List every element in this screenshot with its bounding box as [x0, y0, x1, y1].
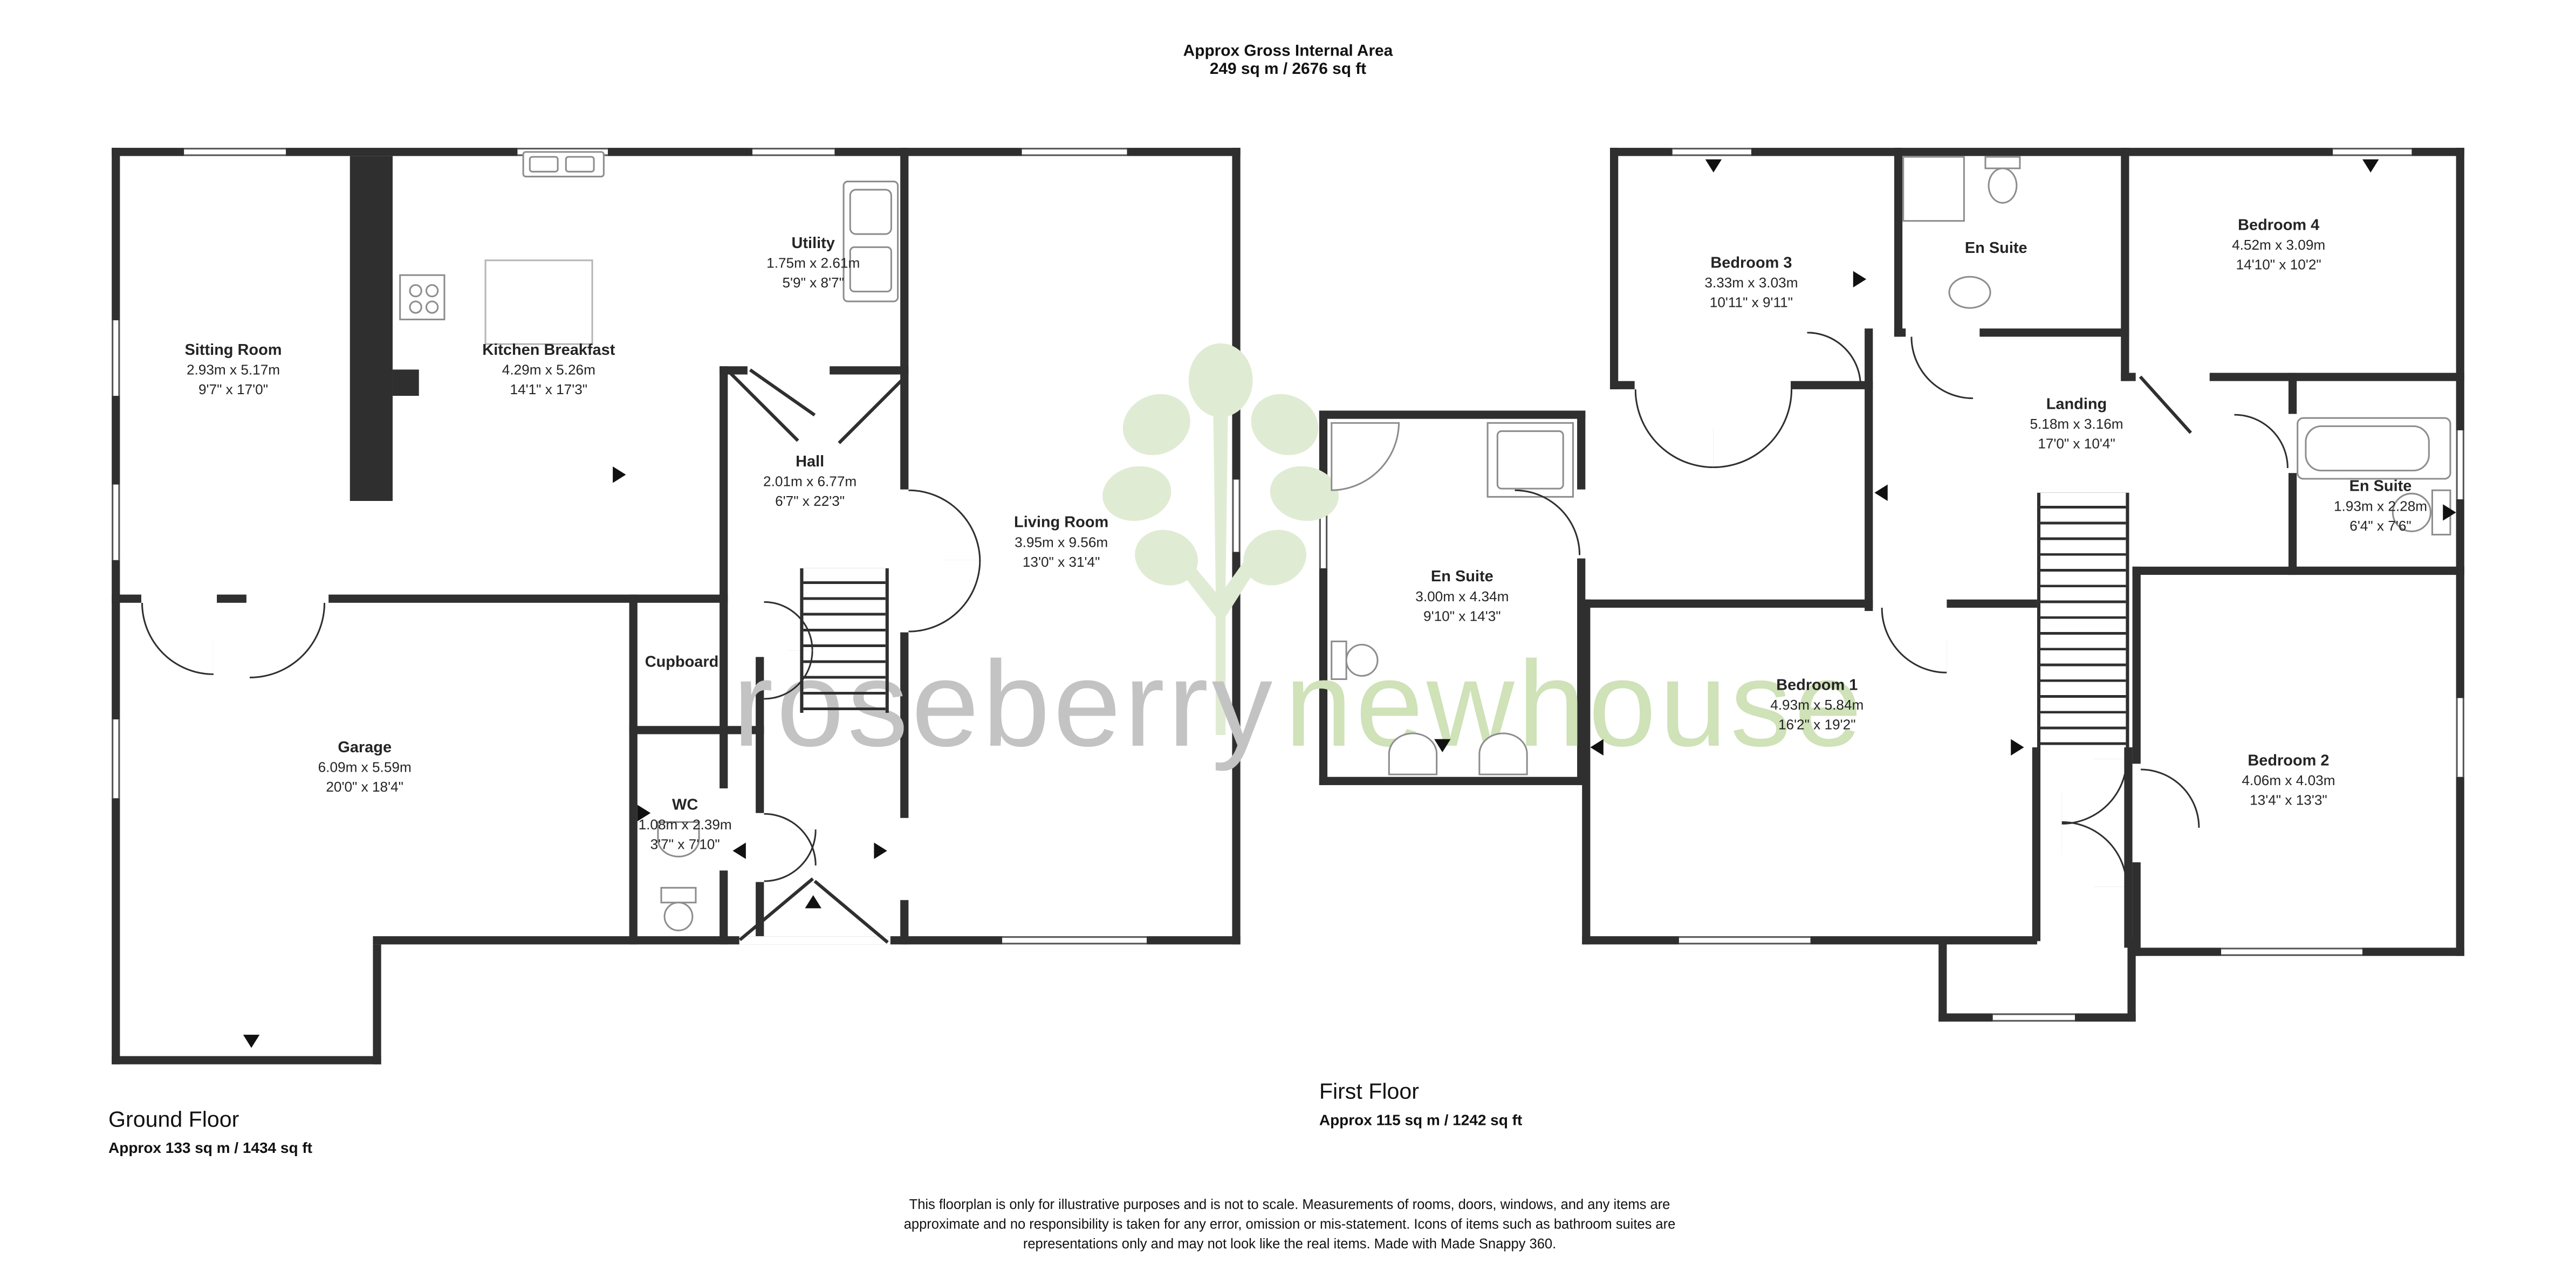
room-metric: 4.52m x 3.09m [2163, 237, 2393, 256]
door-arc [764, 829, 816, 882]
window [184, 148, 286, 156]
door-arc [2062, 759, 2128, 824]
room-metric: 2.01m x 6.77m [728, 473, 892, 492]
wall [1319, 410, 1585, 418]
floorplan-canvas: roseberry newhouse Approx Gross Internal… [0, 0, 2576, 1278]
floor-name: Ground Floor [108, 1107, 312, 1132]
wall [1577, 410, 1585, 489]
room-label-wc: WC 1.08m x 2.39m 3'7" x 7'10" [603, 796, 768, 854]
room-name: Hall [728, 454, 892, 474]
room-name: En Suite [2298, 478, 2463, 498]
room-name: Bedroom 4 [2163, 217, 2393, 237]
wall [1894, 148, 1902, 336]
room-imperial: 13'4" x 13'3" [2174, 791, 2403, 809]
door-leaf [838, 374, 907, 444]
door-arc [2062, 821, 2128, 887]
room-imperial: 3'7" x 7'10" [603, 835, 768, 854]
wall [112, 595, 141, 603]
wall [328, 595, 728, 603]
floor-name: First Floor [1319, 1079, 1522, 1104]
room-label-bedroom-2: Bedroom 2 4.06m x 4.03m 13'4" x 13'3" [2174, 752, 2403, 809]
gross-internal-area-header: Approx Gross Internal Area 249 sq m / 26… [960, 43, 1616, 79]
room-metric: 4.06m x 4.03m [2174, 773, 2403, 791]
room-label-hall: Hall 2.01m x 6.77m 6'7" x 22'3" [728, 454, 892, 511]
room-label-en-suite-top: En Suite [1914, 240, 2078, 260]
wall [112, 148, 120, 1064]
wall [2133, 567, 2464, 575]
utility-sink-bowl-icon [849, 189, 892, 235]
wall [830, 366, 908, 374]
kitchen-sink-bowl-icon [529, 156, 559, 172]
room-name: En Suite [1914, 240, 2078, 260]
room-name: Utility [731, 235, 895, 256]
toilet-icon [1331, 641, 1347, 680]
room-imperial: 6'4" x 7'6" [2298, 517, 2463, 535]
wall [1319, 777, 1585, 785]
door-leaf [749, 368, 816, 416]
room-imperial: 5'9" x 8'7" [731, 273, 895, 292]
shower-tray-icon [1497, 430, 1564, 490]
room-name: Garage [266, 739, 463, 760]
wall [1938, 939, 1947, 1021]
wall [1582, 600, 1873, 608]
window [1679, 936, 1811, 944]
basin-icon [1478, 732, 1527, 775]
door-arc [141, 603, 214, 675]
wall [2289, 373, 2297, 414]
room-name: En Suite [1347, 568, 1577, 589]
toilet-bowl-icon [1346, 644, 1379, 677]
kitchen-sink-bowl-icon [565, 156, 595, 172]
wall [2121, 148, 2129, 381]
basin-icon [1388, 732, 1437, 775]
room-metric: 2.93m x 5.17m [135, 362, 332, 380]
chimney-wall [350, 156, 393, 501]
wall [2210, 373, 2464, 381]
room-metric: 1.08m x 2.39m [603, 817, 768, 835]
room-label-utility: Utility 1.75m x 2.61m 5'9" x 8'7" [731, 235, 895, 292]
door-arc [1635, 389, 1714, 468]
door-marker [2011, 739, 2024, 755]
ground-floor-caption: Ground Floor Approx 133 sq m / 1434 sq f… [108, 1107, 312, 1156]
door-arc [2234, 414, 2289, 469]
door-marker [2362, 159, 2379, 172]
door-marker [1434, 739, 1450, 752]
wall [756, 882, 764, 945]
floor-area: Approx 115 sq m / 1242 sq ft [1319, 1112, 1522, 1128]
window [2456, 698, 2464, 777]
window [2333, 148, 2411, 156]
wall [1610, 148, 1618, 389]
wall [2032, 747, 2040, 941]
room-imperial: 9'10" x 14'3" [1347, 607, 1577, 626]
toilet-bowl-icon [1988, 168, 2018, 204]
wall [2124, 747, 2132, 948]
room-label-en-suite-right: En Suite 1.93m x 2.28m 6'4" x 7'6" [2298, 478, 2463, 535]
door-arc [1515, 490, 1580, 555]
wall [1947, 600, 2037, 608]
door-marker [874, 843, 887, 859]
room-metric: 3.95m x 9.56m [946, 534, 1176, 553]
wall [720, 366, 728, 788]
header-title: Approx Gross Internal Area [960, 43, 1616, 61]
wall [112, 1056, 381, 1064]
door-marker [243, 1035, 259, 1048]
first-floor-caption: First Floor Approx 115 sq m / 1242 sq ft [1319, 1079, 1522, 1128]
room-label-living-room: Living Room 3.95m x 9.56m 13'0" x 31'4" [946, 514, 1176, 571]
room-imperial: 10'11" x 9'11" [1636, 293, 1866, 312]
room-label-garage: Garage 6.09m x 5.59m 20'0" x 18'4" [266, 739, 463, 796]
header-area: 249 sq m / 2676 sq ft [960, 61, 1616, 79]
window [1022, 148, 1127, 156]
wall [2133, 567, 2141, 764]
wall [720, 870, 728, 944]
bath-tub-icon [2305, 425, 2429, 471]
room-name: Bedroom 3 [1636, 255, 1866, 275]
wall [629, 595, 638, 945]
wall [900, 148, 908, 490]
room-metric: 5.18m x 3.16m [1962, 416, 2191, 435]
room-label-landing: Landing 5.18m x 3.16m 17'0" x 10'4" [1962, 396, 2191, 453]
hob-icon [399, 274, 445, 320]
room-metric: 4.93m x 5.84m [1702, 697, 1932, 716]
door-marker [1590, 739, 1603, 755]
wall [2456, 148, 2464, 956]
room-imperial: 16'2" x 19'2" [1702, 716, 1932, 734]
room-label-kitchen-breakfast: Kitchen Breakfast 4.29m x 5.26m 14'1" x … [417, 342, 680, 399]
kitchen-island-icon [485, 259, 593, 345]
wc-toilet-icon [660, 887, 696, 903]
wall [393, 369, 419, 396]
room-name: Kitchen Breakfast [417, 342, 680, 362]
room-name: Living Room [946, 514, 1176, 534]
window [1002, 936, 1147, 944]
room-name: Cupboard [600, 654, 764, 674]
door-arc [1910, 336, 1973, 399]
room-name: Landing [1962, 396, 2191, 416]
door-marker [613, 466, 626, 483]
window [1673, 148, 1751, 156]
hob-burners-icon [409, 284, 422, 297]
front-door-opening [739, 936, 890, 944]
room-label-bedroom-3: Bedroom 3 3.33m x 3.03m 10'11" x 9'11" [1636, 255, 1866, 312]
staircase [2037, 493, 2129, 751]
room-name: Bedroom 2 [2174, 752, 2403, 773]
disclaimer-text: This floorplan is only for illustrative … [894, 1194, 1686, 1254]
door-marker [805, 895, 821, 908]
window [112, 320, 120, 396]
room-imperial: 14'10" x 10'2" [2163, 256, 2393, 274]
wall [2121, 373, 2135, 381]
corner-shower-icon [1331, 422, 1400, 491]
door-arc [1881, 608, 1947, 674]
room-label-cupboard: Cupboard [600, 654, 764, 674]
wall [1979, 328, 2129, 336]
room-label-bedroom-4: Bedroom 4 4.52m x 3.09m 14'10" x 10'2" [2163, 217, 2393, 274]
door-leaf [729, 372, 799, 442]
room-label-sitting-room: Sitting Room 2.93m x 5.17m 9'7" x 17'0" [135, 342, 332, 399]
room-name: WC [603, 796, 768, 817]
room-name: Sitting Room [135, 342, 332, 362]
room-imperial: 17'0" x 10'4" [1962, 435, 2191, 453]
door-arc [250, 603, 325, 678]
wall [373, 944, 381, 1064]
window [752, 148, 834, 156]
room-metric: 3.00m x 4.34m [1347, 588, 1577, 607]
door-marker [1705, 159, 1722, 172]
room-label-en-suite-left: En Suite 3.00m x 4.34m 9'10" x 14'3" [1347, 568, 1577, 626]
room-metric: 1.75m x 2.61m [731, 255, 895, 273]
door-arc [1714, 389, 1792, 468]
door-leaf [814, 880, 889, 944]
door-leaf [739, 877, 814, 941]
door-arc [1807, 332, 1861, 386]
room-metric: 6.09m x 5.59m [266, 759, 463, 778]
staircase [800, 568, 888, 713]
room-label-bedroom-1: Bedroom 1 4.93m x 5.84m 16'2" x 19'2" [1702, 677, 1932, 734]
wc-toilet-bowl-icon [664, 902, 694, 931]
room-imperial: 6'7" x 22'3" [728, 492, 892, 510]
door-marker [1874, 485, 1887, 501]
room-metric: 3.33m x 3.03m [1636, 275, 1866, 293]
basin-icon [1948, 276, 1991, 309]
room-imperial: 13'0" x 31'4" [946, 553, 1176, 571]
room-metric: 4.29m x 5.26m [417, 362, 680, 380]
wall [217, 595, 246, 603]
shower-icon [1902, 156, 1965, 222]
window [1993, 1013, 2075, 1021]
window [2221, 947, 2362, 956]
wall [2289, 473, 2297, 575]
window [112, 719, 120, 798]
room-imperial: 20'0" x 18'4" [266, 778, 463, 796]
room-imperial: 9'7" x 17'0" [135, 380, 332, 398]
window [112, 485, 120, 560]
room-imperial: 14'1" x 17'3" [417, 380, 680, 398]
wall [1894, 328, 1906, 336]
wall [900, 900, 908, 944]
wall [1865, 328, 1873, 611]
room-metric: 1.93m x 2.28m [2298, 498, 2463, 517]
wall [1610, 381, 1635, 389]
floor-area: Approx 133 sq m / 1434 sq ft [108, 1140, 312, 1156]
room-name: Bedroom 1 [1702, 677, 1932, 697]
wall [2127, 939, 2135, 1021]
